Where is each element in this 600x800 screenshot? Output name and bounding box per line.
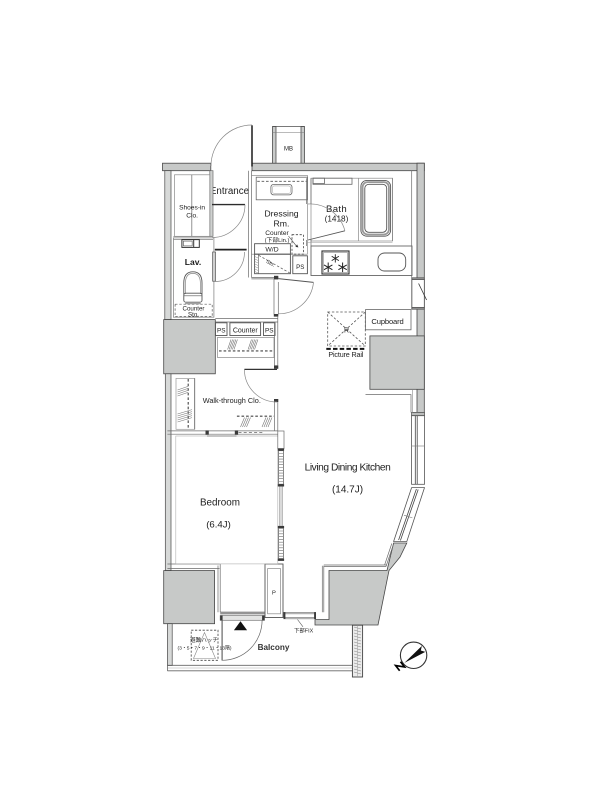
svg-text:PS: PS <box>265 328 274 335</box>
svg-text:Counter: Counter <box>233 328 259 335</box>
svg-text:Picture Rail: Picture Rail <box>328 350 364 359</box>
svg-text:Entrance: Entrance <box>210 186 250 197</box>
svg-text:避難ハッチ: 避難ハッチ <box>190 636 218 644</box>
svg-text:R: R <box>344 328 349 335</box>
svg-text:下部FIX: 下部FIX <box>294 627 314 635</box>
svg-text:Balcony: Balcony <box>258 643 290 652</box>
svg-text:MB: MB <box>284 147 293 153</box>
svg-text:P: P <box>272 591 276 597</box>
svg-text:Cupboard: Cupboard <box>371 317 403 326</box>
svg-text:Counter: Counter <box>265 230 289 237</box>
svg-text:Clo.: Clo. <box>186 213 198 220</box>
svg-text:(下部Lin.): (下部Lin.) <box>265 236 290 244</box>
svg-text:Bedroom: Bedroom <box>200 498 240 509</box>
svg-text:PS: PS <box>296 264 304 271</box>
svg-text:(14.7J): (14.7J) <box>332 485 363 496</box>
svg-text:PS: PS <box>217 328 226 335</box>
svg-text:Sto.: Sto. <box>188 312 199 319</box>
svg-text:Walk-through Clo.: Walk-through Clo. <box>203 396 261 405</box>
svg-text:W/D: W/D <box>265 247 278 254</box>
svg-text:Living Dining Kitchen: Living Dining Kitchen <box>305 463 391 474</box>
svg-text:Rm.: Rm. <box>274 219 290 229</box>
svg-text:Shoes-in: Shoes-in <box>179 205 205 212</box>
svg-text:Dressing: Dressing <box>264 209 298 219</box>
svg-text:Lav.: Lav. <box>185 257 201 267</box>
svg-text:(3・5・7・9・11・13階): (3・5・7・9・11・13階) <box>178 644 232 651</box>
svg-text:(6.4J): (6.4J) <box>206 520 231 531</box>
